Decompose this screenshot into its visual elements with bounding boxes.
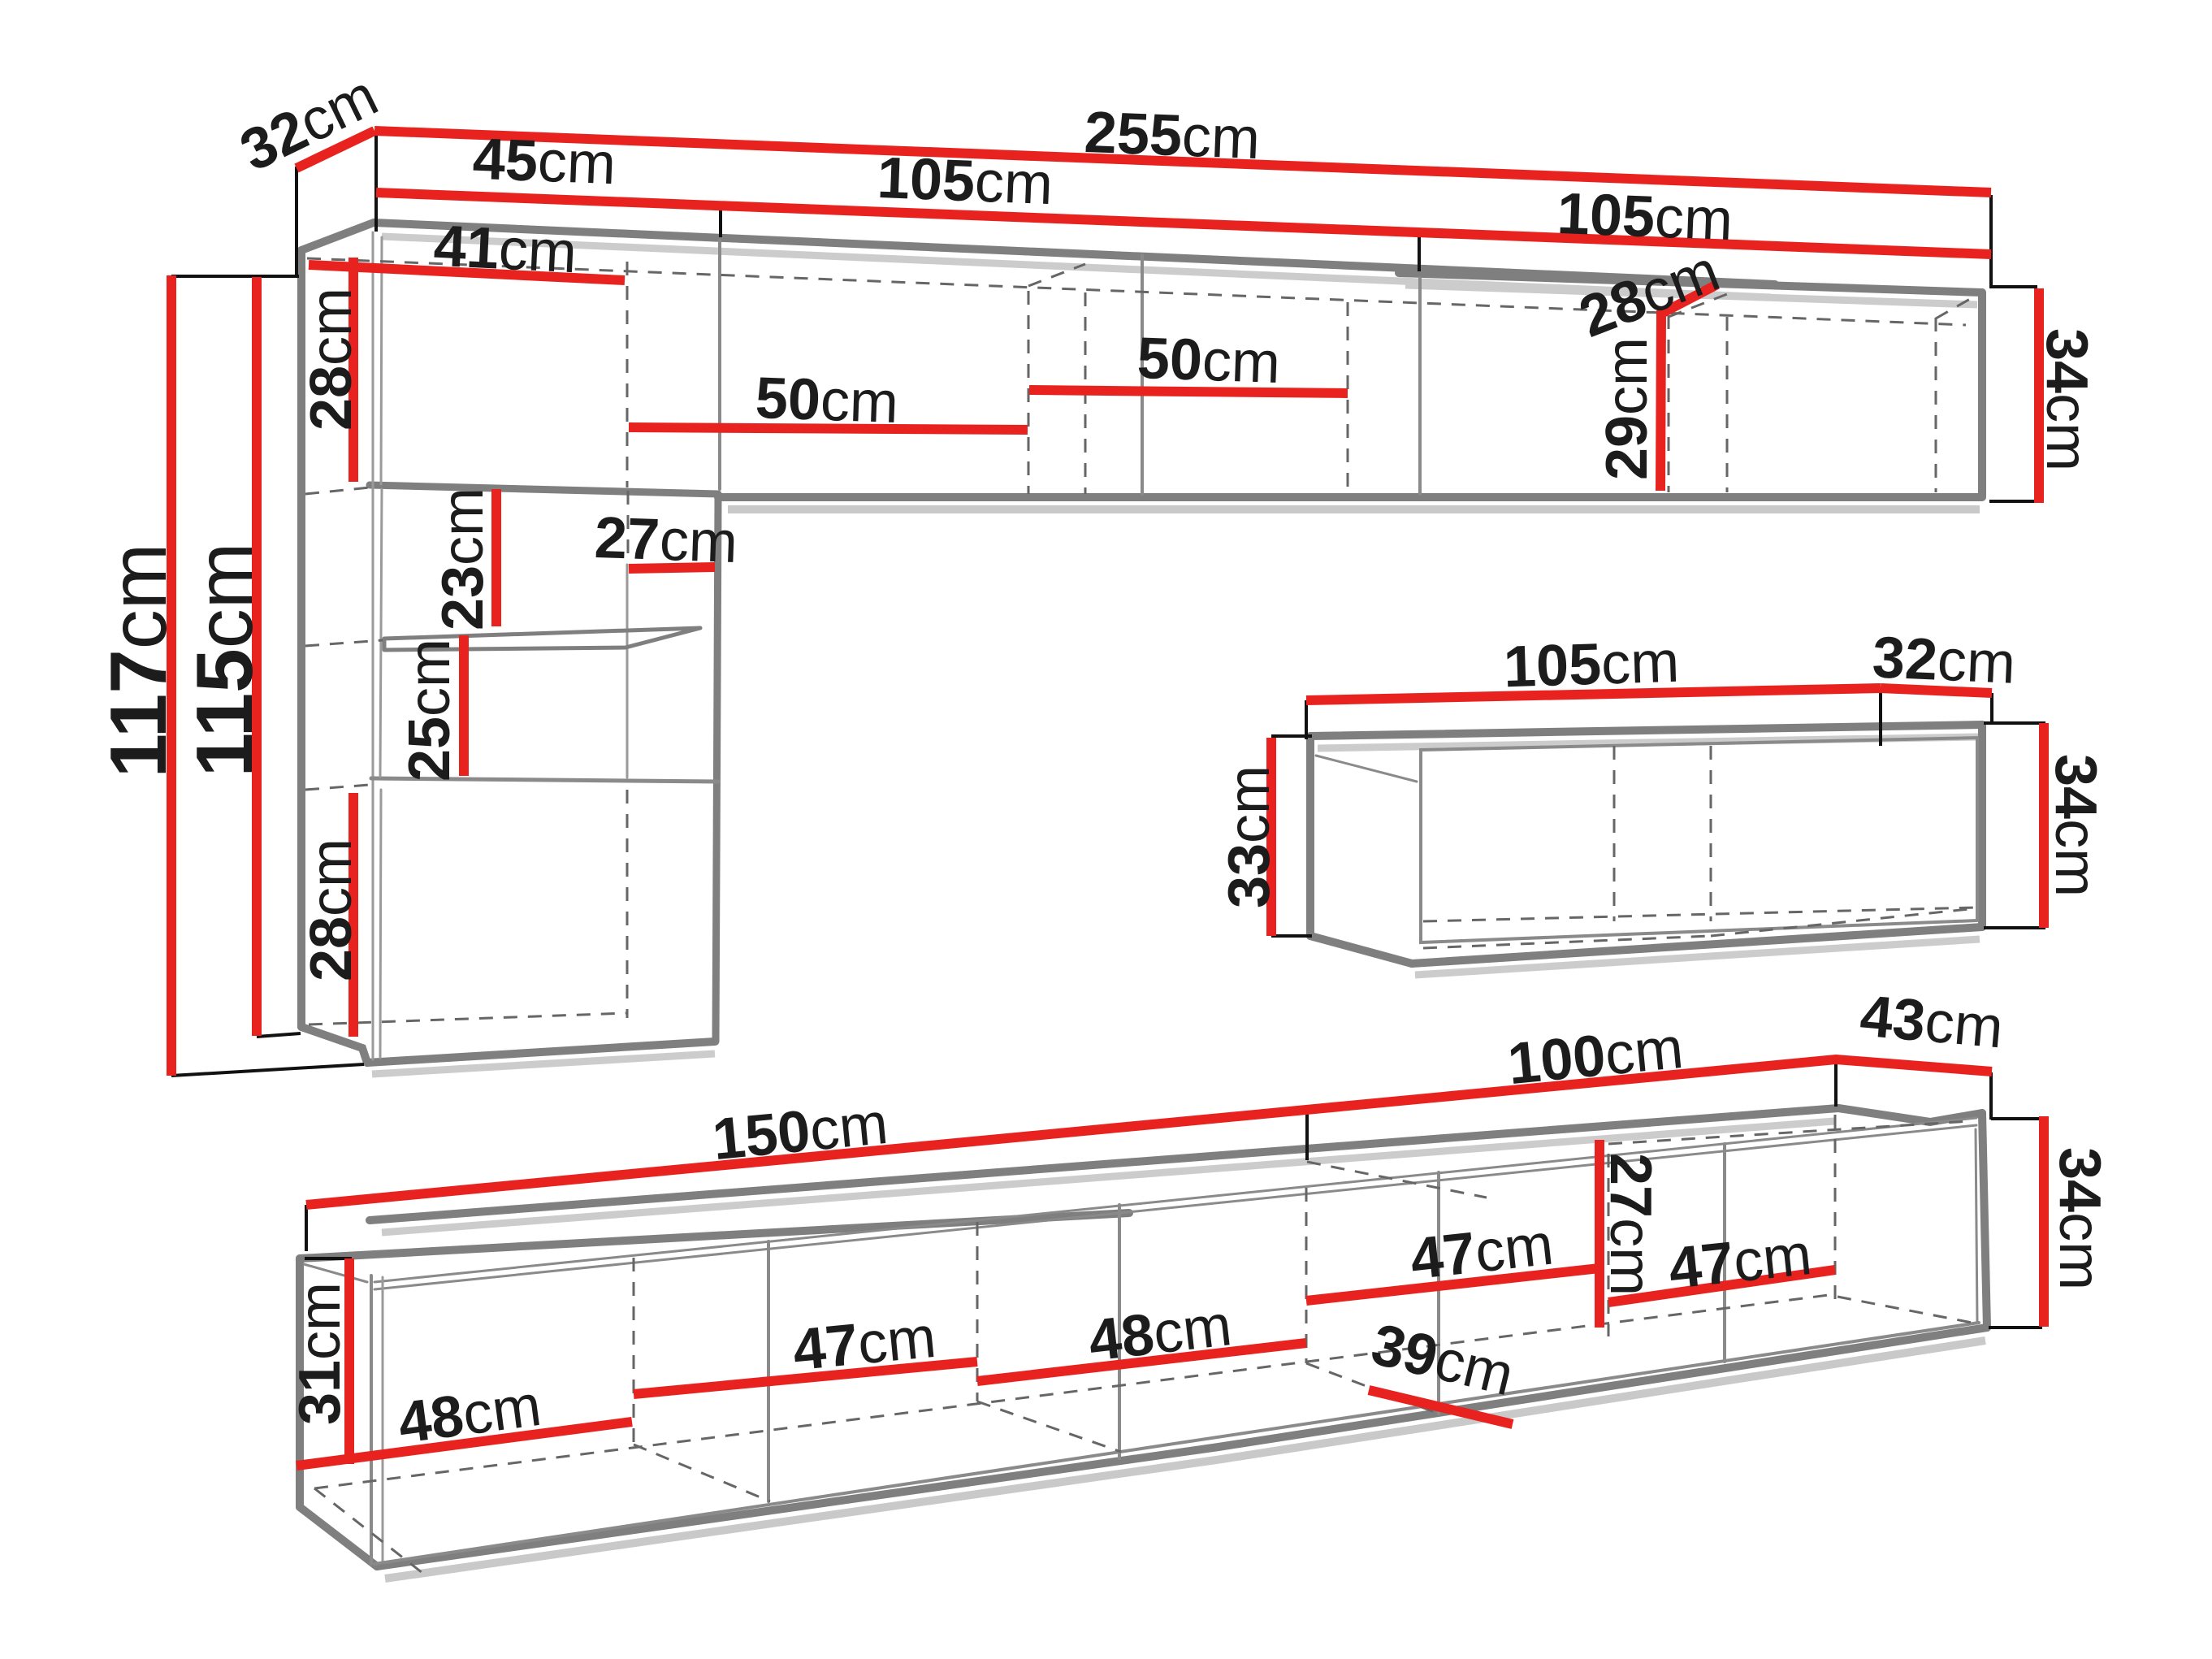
svg-text:29cm: 29cm bbox=[1595, 337, 1660, 480]
svg-text:27cm: 27cm bbox=[594, 505, 739, 575]
svg-text:105cm: 105cm bbox=[1503, 630, 1681, 700]
svg-text:105cm: 105cm bbox=[876, 145, 1054, 217]
svg-text:34cm: 34cm bbox=[2047, 1147, 2112, 1290]
svg-text:45cm: 45cm bbox=[471, 127, 617, 197]
svg-text:41cm: 41cm bbox=[432, 214, 578, 286]
svg-text:50cm: 50cm bbox=[1136, 326, 1282, 396]
svg-text:25cm: 25cm bbox=[397, 639, 462, 782]
svg-text:105cm: 105cm bbox=[1556, 181, 1734, 253]
svg-text:43cm: 43cm bbox=[1858, 983, 2006, 1060]
svg-text:117cm: 117cm bbox=[93, 544, 183, 778]
svg-text:32cm: 32cm bbox=[1871, 625, 2016, 696]
svg-text:50cm: 50cm bbox=[755, 366, 900, 435]
svg-text:31cm: 31cm bbox=[288, 1282, 353, 1425]
svg-text:34cm: 34cm bbox=[2034, 328, 2099, 471]
svg-text:115cm: 115cm bbox=[180, 543, 269, 778]
svg-text:47cm: 47cm bbox=[790, 1305, 939, 1384]
svg-text:255cm: 255cm bbox=[1083, 100, 1261, 171]
svg-text:23cm: 23cm bbox=[431, 487, 496, 630]
svg-text:28cm: 28cm bbox=[299, 838, 364, 981]
svg-text:34cm: 34cm bbox=[2043, 754, 2108, 897]
svg-text:27cm: 27cm bbox=[1598, 1153, 1663, 1296]
svg-text:28cm: 28cm bbox=[299, 288, 364, 431]
svg-text:33cm: 33cm bbox=[1217, 765, 1282, 908]
